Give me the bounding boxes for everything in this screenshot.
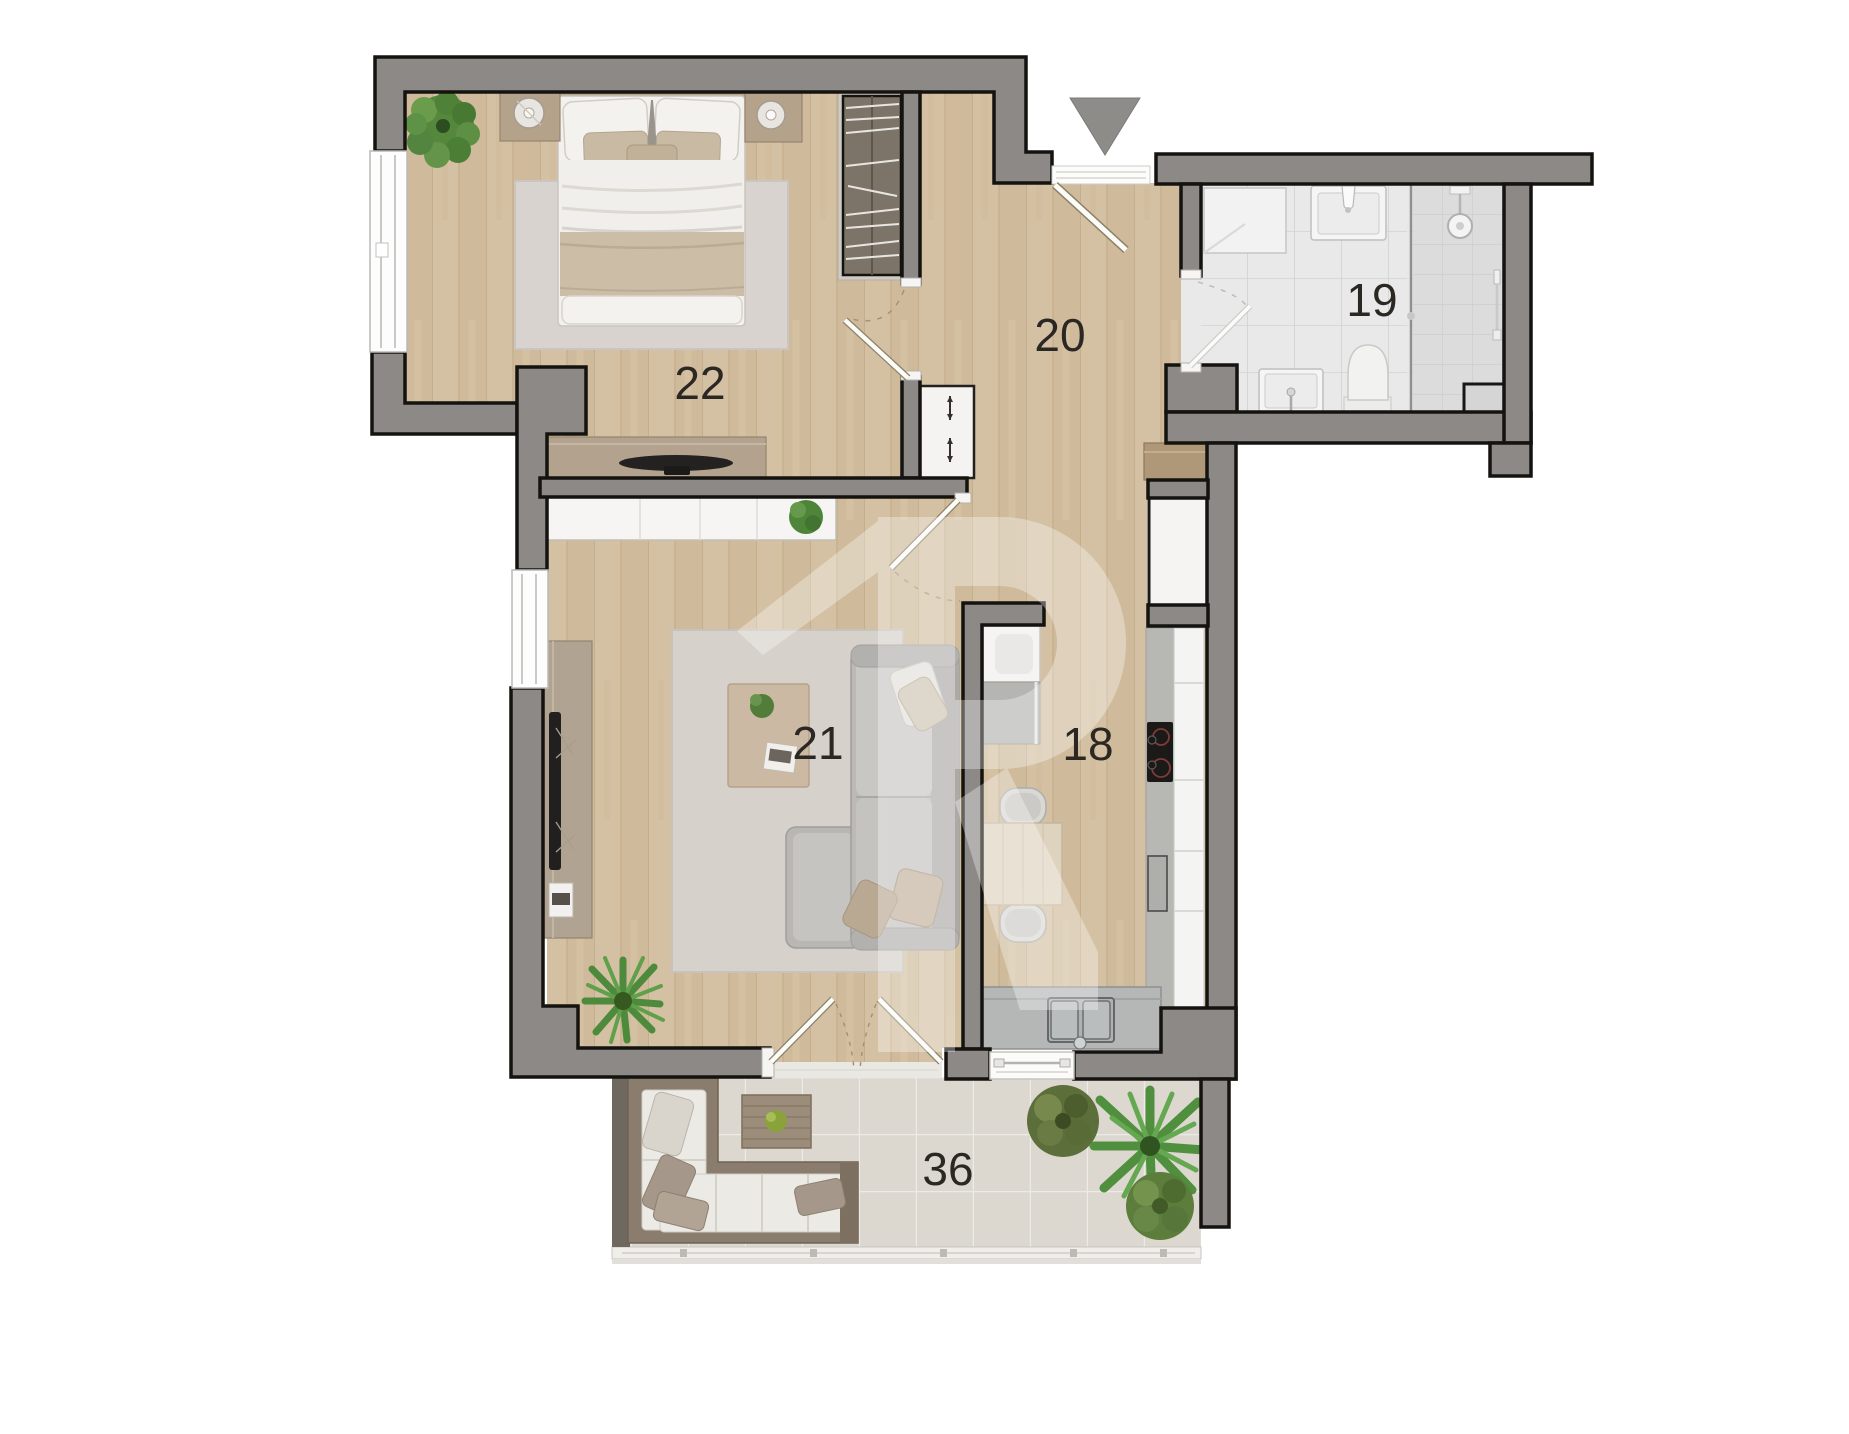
svg-text:22: 22	[674, 357, 725, 409]
svg-text:20: 20	[1034, 309, 1085, 361]
svg-text:19: 19	[1346, 274, 1397, 326]
svg-text:36: 36	[922, 1143, 973, 1195]
svg-text:21: 21	[792, 717, 843, 769]
svg-text:18: 18	[1062, 718, 1113, 770]
